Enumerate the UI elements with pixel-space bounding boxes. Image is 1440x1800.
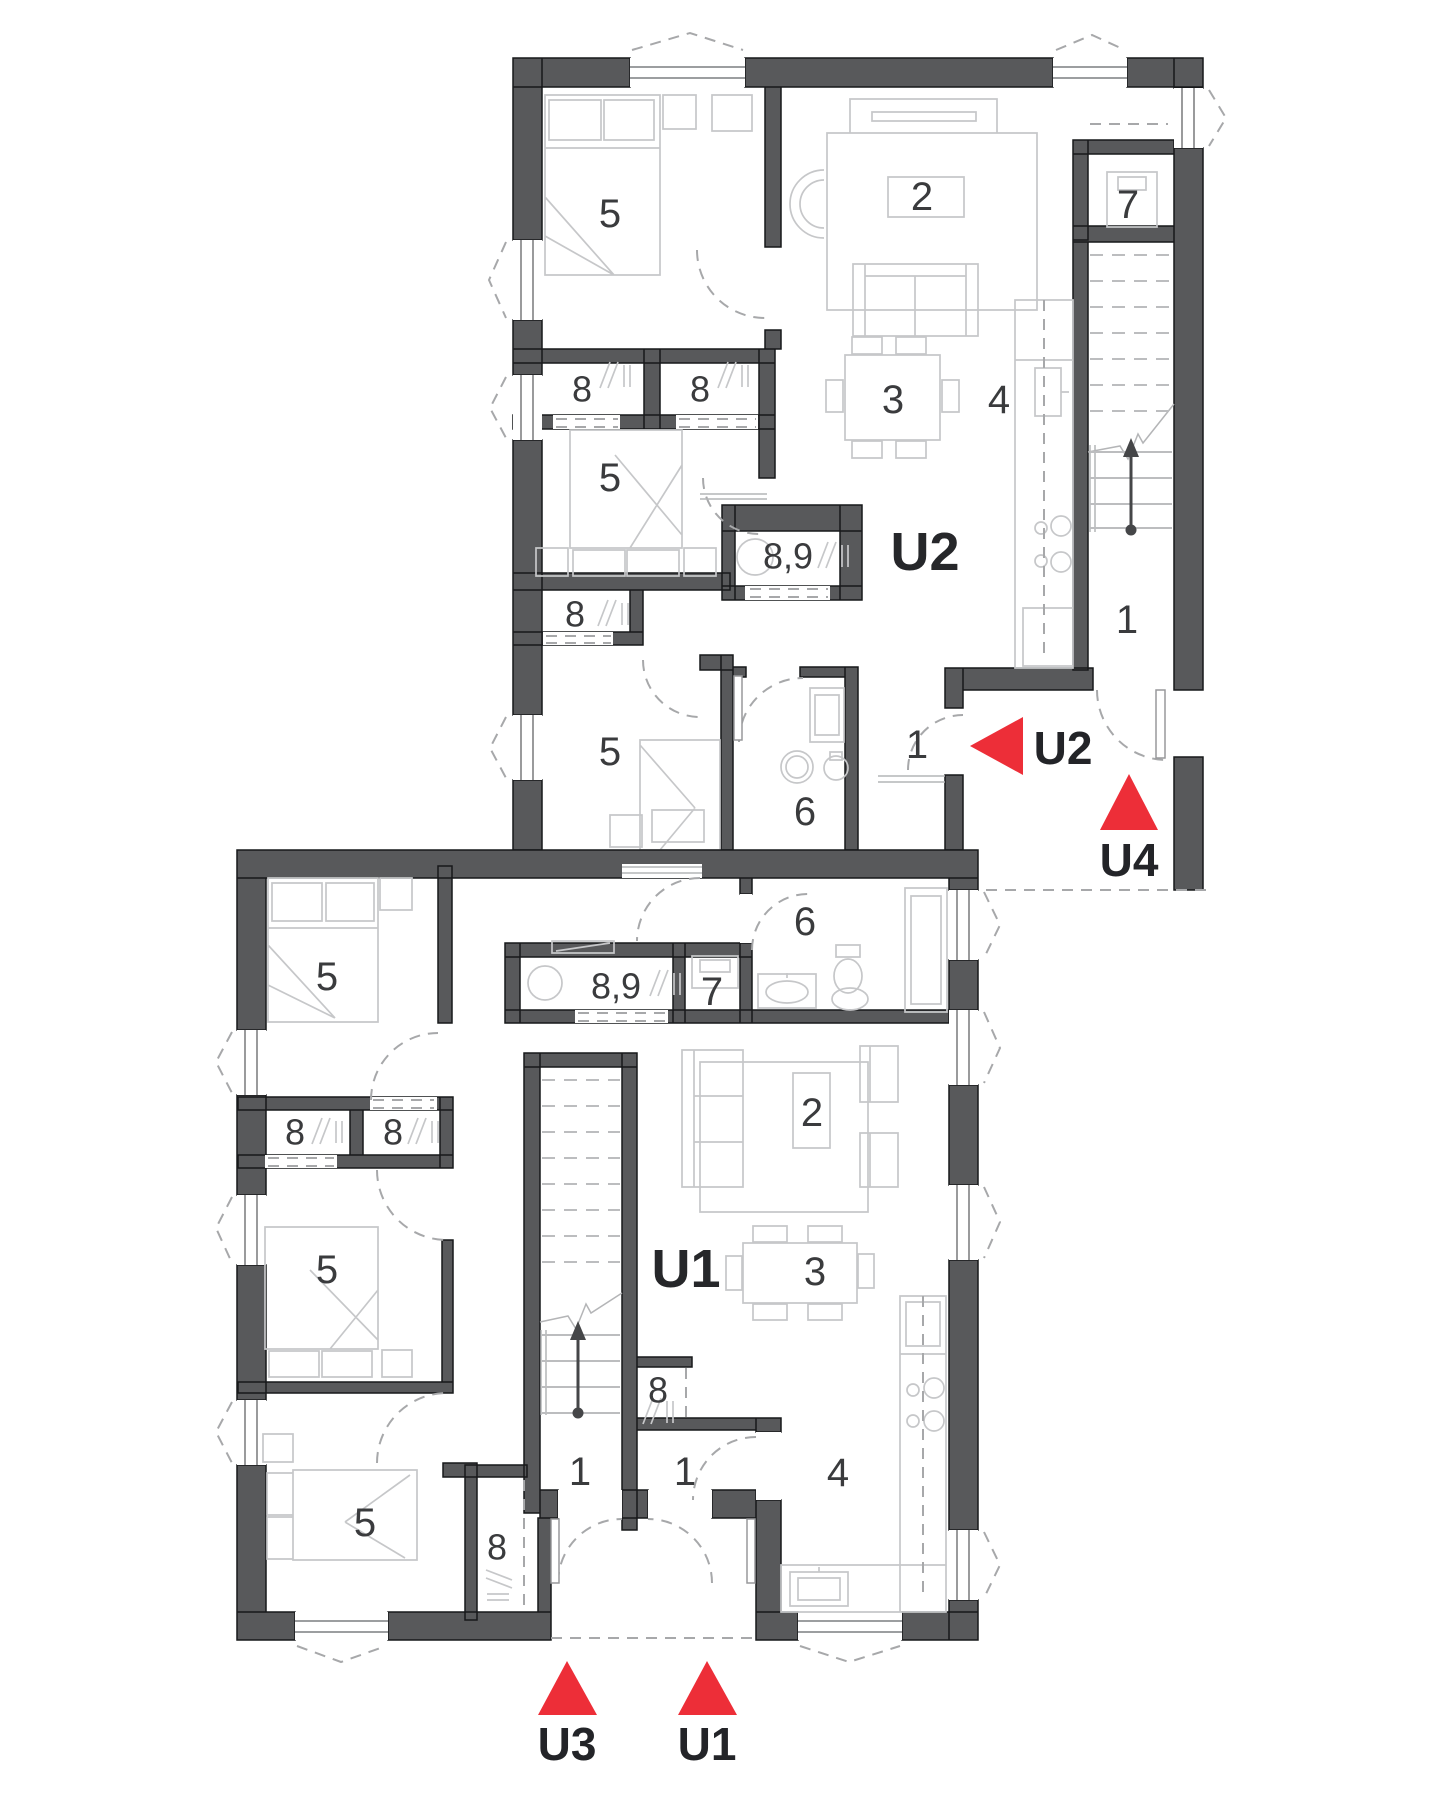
marker-u2-triangle-icon <box>970 717 1023 775</box>
marker-u4: U4 <box>1100 774 1159 886</box>
marker-u3-triangle-icon <box>538 1661 597 1715</box>
room-label-u2-hall: 1 <box>906 723 928 767</box>
room-label-u2-kitchen: 4 <box>988 378 1010 422</box>
stair-treads-upper-u2 <box>1090 255 1172 411</box>
marker-u1: U1 <box>678 1661 737 1770</box>
marker-u1-triangle-icon <box>678 1661 737 1715</box>
room-label-u1-bathroom: 8,9 <box>591 966 641 1007</box>
stairs-u1 <box>542 1080 620 1419</box>
room-label-u2-bedroom-mid: 5 <box>599 456 621 500</box>
room-label-u1-living: 2 <box>801 1091 823 1135</box>
room-label-u2-living: 2 <box>911 175 933 219</box>
room-label-u1-hall-right: 1 <box>674 1450 696 1494</box>
room-label-u1-hall-left: 1 <box>569 1450 591 1494</box>
room-label-u2-closet-c: 8 <box>565 594 585 635</box>
marker-u4-label: U4 <box>1100 834 1159 886</box>
room-label-u2-bedroom-top: 5 <box>599 192 621 236</box>
marker-u3: U3 <box>538 1661 597 1770</box>
marker-u3-label: U3 <box>538 1718 597 1770</box>
stair-treads-upper-u1 <box>542 1080 620 1262</box>
room-label-u2-storage: 7 <box>1117 183 1139 227</box>
stair-treads-lower-u1 <box>542 1335 620 1413</box>
room-label-u2-bathroom: 8,9 <box>763 536 813 577</box>
room-label-u1-wc: 6 <box>794 900 816 944</box>
unit-u1: 5 8 8 5 5 8 8 8,9 7 6 2 3 4 1 1 U1 <box>216 850 1000 1662</box>
stair-start-dot-u2 <box>1126 525 1137 536</box>
room-label-u1-kitchen: 4 <box>827 1451 849 1495</box>
room-label-u1-closet-c: 8 <box>487 1527 507 1568</box>
room-label-u1-closet-a: 8 <box>285 1112 305 1153</box>
room-label-u1-dining: 3 <box>804 1250 826 1294</box>
room-label-u2-closet-a: 8 <box>572 369 592 410</box>
marker-u2-label: U2 <box>1034 722 1093 774</box>
room-label-u1-bedroom-top: 5 <box>316 955 338 999</box>
stair-start-dot-u1 <box>573 1408 584 1419</box>
marker-u4-triangle-icon <box>1100 774 1158 830</box>
room-label-u1-bedroom-mid: 5 <box>316 1248 338 1292</box>
room-label-u1-closet-b: 8 <box>383 1112 403 1153</box>
door-leaves-u1 <box>551 1519 755 1583</box>
room-label-u1-bedroom-low: 5 <box>354 1501 376 1545</box>
unit-u2: 5 2 3 4 8 8 5 8,9 8 5 6 1 7 1 U2 <box>489 33 1226 890</box>
room-label-u2-bedroom-low: 5 <box>599 730 621 774</box>
room-label-u2-dining: 3 <box>882 378 904 422</box>
room-label-u1-storage: 7 <box>701 970 723 1014</box>
room-label-u2-wc: 6 <box>794 790 816 834</box>
stair-arrowhead-u2 <box>1123 438 1139 457</box>
room-label-u2-stair-hall: 1 <box>1116 598 1138 642</box>
unit-label-u1: U1 <box>651 1239 720 1299</box>
room-label-u1-closet-d: 8 <box>648 1370 668 1411</box>
floor-plan-svg: 5 2 3 4 8 8 5 8,9 8 5 6 1 7 1 U2 <box>0 0 1440 1800</box>
stairs-u2 <box>1090 255 1172 536</box>
marker-u1-label: U1 <box>678 1718 737 1770</box>
room-label-u2-closet-b: 8 <box>690 369 710 410</box>
floor-plan: 5 2 3 4 8 8 5 8,9 8 5 6 1 7 1 U2 <box>0 0 1440 1800</box>
unit-label-u2: U2 <box>890 522 959 582</box>
marker-u2: U2 <box>970 717 1092 775</box>
